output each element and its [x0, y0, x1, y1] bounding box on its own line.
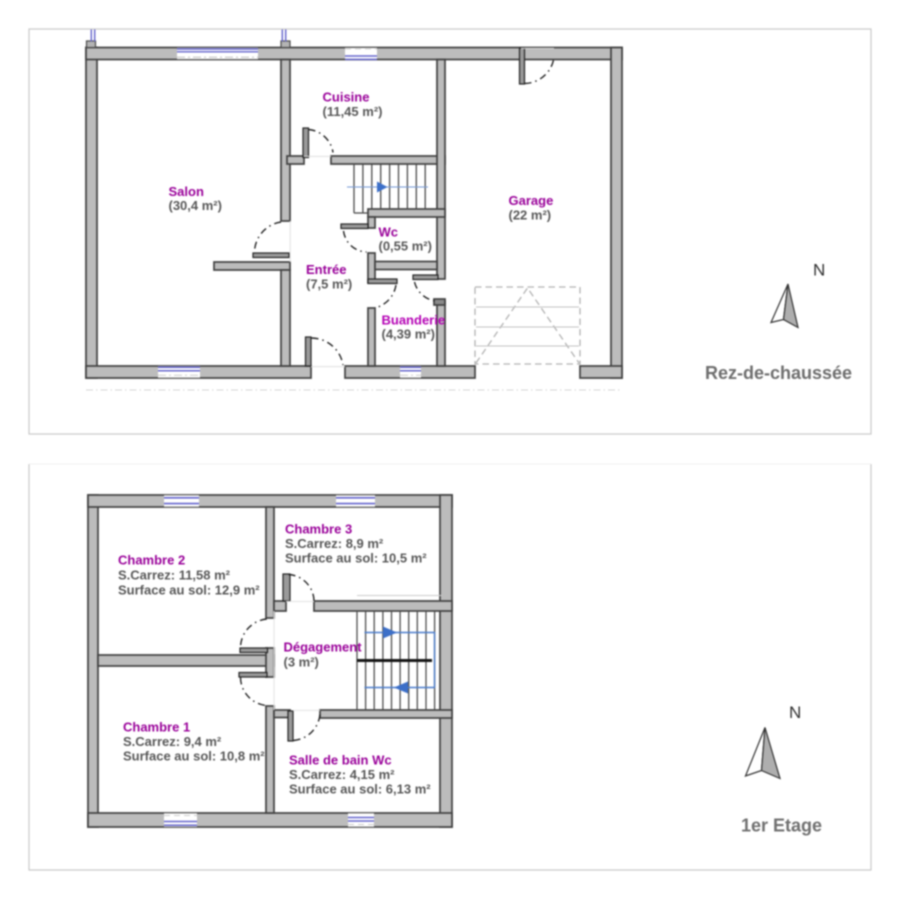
- svg-text:Buanderie: Buanderie: [382, 313, 446, 328]
- svg-text:Chambre 3: Chambre 3: [285, 522, 352, 537]
- svg-text:Cuisine: Cuisine: [323, 90, 370, 105]
- svg-text:Salon: Salon: [169, 184, 204, 199]
- svg-text:Garage: Garage: [509, 193, 554, 208]
- svg-text:(0,55 m²): (0,55 m²): [379, 239, 432, 254]
- svg-text:Surface au sol: 6,13 m²: Surface au sol: 6,13 m²: [289, 782, 431, 797]
- svg-text:Surface au sol: 12,9 m²: Surface au sol: 12,9 m²: [118, 583, 260, 598]
- svg-text:(11,45 m²): (11,45 m²): [323, 104, 383, 119]
- svg-text:Surface au sol: 10,5 m²: Surface au sol: 10,5 m²: [285, 551, 427, 566]
- svg-text:(7,5 m²): (7,5 m²): [306, 277, 352, 292]
- svg-text:Wc: Wc: [379, 225, 399, 240]
- svg-text:N: N: [789, 703, 801, 722]
- svg-text:(3 m²): (3 m²): [284, 655, 319, 670]
- svg-text:1er Etage: 1er Etage: [741, 816, 822, 836]
- svg-text:(22 m²): (22 m²): [509, 208, 552, 223]
- svg-text:S.Carrez: 11,58 m²: S.Carrez: 11,58 m²: [118, 568, 231, 583]
- svg-text:S.Carrez: 8,9 m²: S.Carrez: 8,9 m²: [285, 536, 384, 551]
- svg-text:Surface au sol: 10,8 m²: Surface au sol: 10,8 m²: [123, 749, 265, 764]
- svg-text:S.Carrez: 9,4 m²: S.Carrez: 9,4 m²: [123, 734, 222, 749]
- svg-text:N: N: [813, 261, 825, 280]
- svg-text:Chambre 1: Chambre 1: [123, 720, 190, 735]
- svg-text:(4,39 m²): (4,39 m²): [382, 327, 435, 342]
- svg-text:Chambre 2: Chambre 2: [118, 553, 185, 568]
- svg-text:Rez-de-chaussée: Rez-de-chaussée: [705, 363, 852, 383]
- svg-text:Salle de bain Wc: Salle de bain Wc: [289, 753, 392, 768]
- svg-text:Entrée: Entrée: [306, 262, 346, 277]
- svg-text:(30,4 m²): (30,4 m²): [169, 198, 222, 213]
- svg-text:S.Carrez: 4,15 m²: S.Carrez: 4,15 m²: [289, 767, 395, 782]
- svg-text:Dégagement: Dégagement: [284, 640, 363, 655]
